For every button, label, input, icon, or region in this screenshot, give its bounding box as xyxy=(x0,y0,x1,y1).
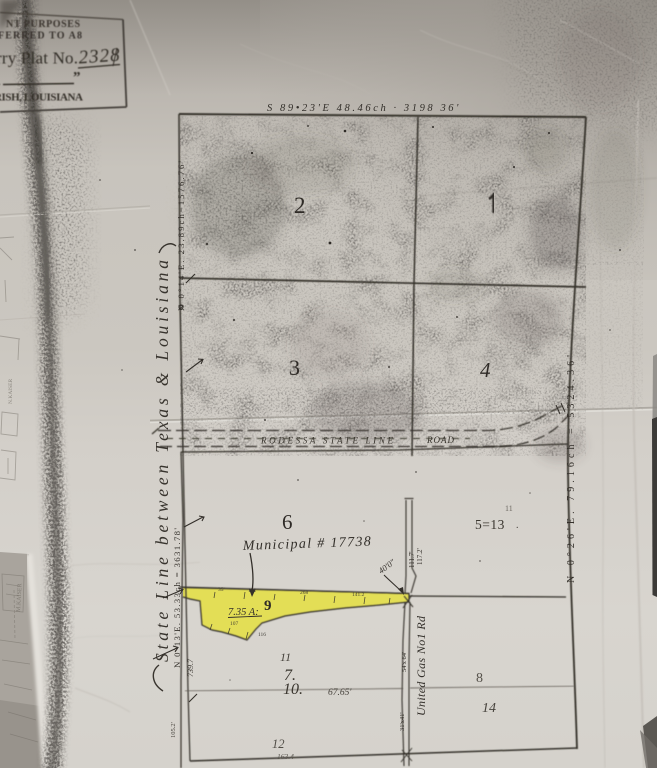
svg-text:3: 3 xyxy=(289,355,300,380)
svg-text:6: 6 xyxy=(282,510,293,534)
svg-text:rry Plat No.: rry Plat No. xyxy=(0,49,78,68)
svg-text:.: . xyxy=(516,520,519,531)
svg-text:14: 14 xyxy=(482,701,496,716)
svg-text:RODESSA STATE LINE: RODESSA STATE LINE xyxy=(260,436,394,446)
svg-text:United Gas No1 Rd: United Gas No1 Rd xyxy=(414,615,428,716)
svg-text:FERRED TO A8: FERRED TO A8 xyxy=(0,31,82,42)
svg-text:4: 4 xyxy=(480,358,491,382)
svg-text:11: 11 xyxy=(505,504,513,513)
svg-text:35': 35' xyxy=(218,587,225,593)
svg-text:117.2': 117.2' xyxy=(416,548,424,565)
svg-text:ROAD: ROAD xyxy=(426,435,455,445)
svg-text:N.KAISER: N.KAISER xyxy=(8,378,14,404)
svg-text:2: 2 xyxy=(294,193,306,218)
svg-text:151: 151 xyxy=(248,588,257,594)
svg-text:NT PURPOSES: NT PURPOSES xyxy=(6,19,80,30)
svg-text:105.2': 105.2' xyxy=(170,722,177,738)
svg-text:116: 116 xyxy=(258,632,266,638)
svg-text:67.65': 67.65' xyxy=(328,688,352,698)
svg-text:54'x 64': 54'x 64' xyxy=(401,652,408,672)
svg-text:141.2: 141.2 xyxy=(352,592,365,598)
svg-text:S 89•23'E 48.46ch · 3198 36': S 89•23'E 48.46ch · 3198 36' xyxy=(267,103,459,114)
svg-text:31'x41': 31'x41' xyxy=(399,712,406,731)
svg-text:9: 9 xyxy=(264,598,272,614)
svg-text:RISH, LOUISIANA: RISH, LOUISIANA xyxy=(0,92,83,104)
svg-text:163.4: 163.4 xyxy=(277,752,294,761)
svg-text:8: 8 xyxy=(476,671,483,686)
svg-text:12: 12 xyxy=(272,737,285,751)
svg-text:111.7': 111.7' xyxy=(408,552,416,569)
svg-text:739.7: 739.7 xyxy=(186,658,195,677)
svg-text:107: 107 xyxy=(230,621,239,627)
svg-text:5=13: 5=13 xyxy=(475,517,505,532)
svg-text:11: 11 xyxy=(280,650,291,664)
svg-text:268: 268 xyxy=(300,590,309,596)
svg-text:10.: 10. xyxy=(283,681,303,698)
svg-text:”: ” xyxy=(73,70,81,86)
